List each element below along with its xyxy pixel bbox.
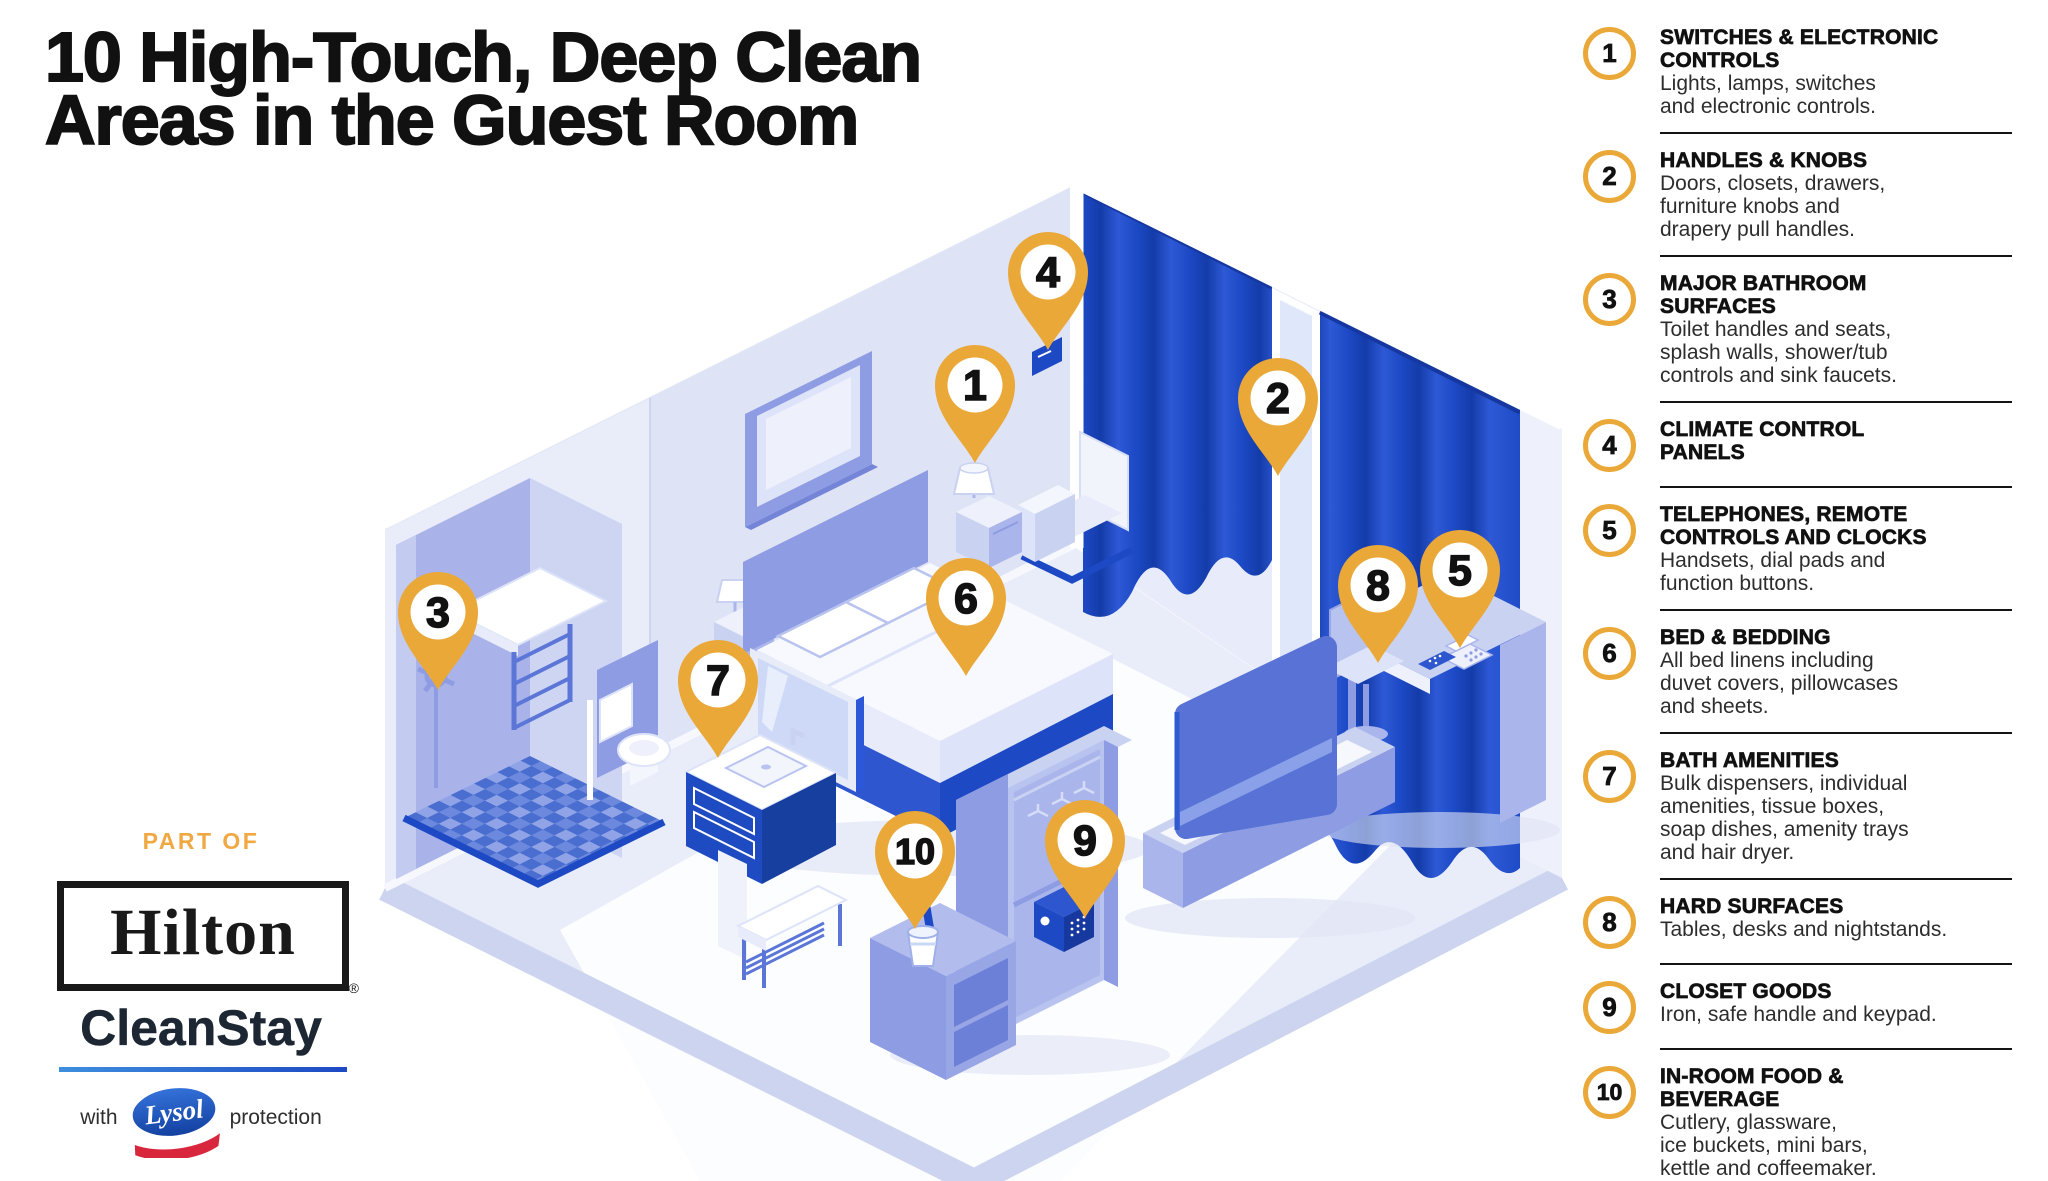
lysol-lockup: with Lysol protection — [43, 1078, 359, 1158]
legend-item-8: 8 HARD SURFACES Tables, desks and nights… — [1583, 893, 2025, 957]
legend-badge-8: 8 — [1583, 896, 1636, 949]
legend-title-2: HANDLES & KNOBS — [1660, 149, 2012, 172]
legend-badge-6: 6 — [1583, 627, 1636, 680]
legend-item-1: 1 SWITCHES & ELECTRONIC CONTROLS Lights,… — [1583, 24, 2025, 126]
legend-desc-5: Handsets, dial pads and function buttons… — [1660, 549, 2012, 595]
legend-desc-6: All bed linens including duvet covers, p… — [1660, 649, 2012, 718]
divider — [1660, 609, 2012, 611]
divider — [1660, 732, 2012, 734]
svg-text:10: 10 — [895, 831, 935, 872]
svg-text:8: 8 — [1366, 562, 1390, 610]
part-of-label: PART OF — [43, 828, 359, 855]
legend-item-9: 9 CLOSET GOODS Iron, safe handle and key… — [1583, 978, 2025, 1042]
lysol-logo: Lysol — [128, 1078, 220, 1158]
svg-text:7: 7 — [706, 657, 730, 705]
page-title: 10 High-Touch, Deep Clean Areas in the G… — [45, 26, 921, 152]
svg-text:3: 3 — [426, 589, 450, 637]
title-line-1: 10 High-Touch, Deep Clean — [45, 26, 921, 89]
legend-desc-3: Toilet handles and seats, splash walls, … — [1660, 318, 2012, 387]
divider — [1660, 486, 2012, 488]
legend: 1 SWITCHES & ELECTRONIC CONTROLS Lights,… — [1583, 24, 2025, 1181]
legend-title-1: SWITCHES & ELECTRONIC CONTROLS — [1660, 26, 2012, 72]
legend-title-8: HARD SURFACES — [1660, 895, 2012, 918]
legend-title-5: TELEPHONES, REMOTE CONTROLS AND CLOCKS — [1660, 503, 2012, 549]
divider — [1660, 1048, 2012, 1050]
svg-text:6: 6 — [954, 575, 978, 623]
legend-badge-10: 10 — [1583, 1066, 1636, 1119]
legend-title-4: CLIMATE CONTROL PANELS — [1660, 418, 2012, 464]
branding: PART OF Hilton ® CleanStay with Lysol — [43, 828, 363, 1158]
hilton-logo: Hilton ® — [57, 881, 349, 991]
protection-label: protection — [230, 1106, 322, 1130]
legend-title-9: CLOSET GOODS — [1660, 980, 2012, 1003]
legend-title-6: BED & BEDDING — [1660, 626, 2012, 649]
divider — [1660, 878, 2012, 880]
legend-badge-5: 5 — [1583, 504, 1636, 557]
legend-item-3: 3 MAJOR BATHROOM SURFACES Toilet handles… — [1583, 270, 2025, 395]
legend-title-7: BATH AMENITIES — [1660, 749, 2012, 772]
svg-text:9: 9 — [1073, 817, 1097, 865]
title-line-2: Areas in the Guest Room — [45, 89, 921, 152]
legend-title-3: MAJOR BATHROOM SURFACES — [1660, 272, 2012, 318]
svg-text:2: 2 — [1266, 375, 1290, 423]
divider — [1660, 963, 2012, 965]
legend-desc-1: Lights, lamps, switches and electronic c… — [1660, 72, 2012, 118]
legend-badge-7: 7 — [1583, 750, 1636, 803]
legend-badge-1: 1 — [1583, 27, 1636, 80]
svg-text:5: 5 — [1448, 547, 1472, 595]
legend-desc-7: Bulk dispensers, individual amenities, t… — [1660, 772, 2012, 864]
legend-desc-9: Iron, safe handle and keypad. — [1660, 1003, 2012, 1026]
legend-item-6: 6 BED & BEDDING All bed linens including… — [1583, 624, 2025, 726]
legend-desc-10: Cutlery, glassware, ice buckets, mini ba… — [1660, 1111, 2012, 1180]
legend-badge-4: 4 — [1583, 419, 1636, 472]
legend-desc-2: Doors, closets, drawers, furniture knobs… — [1660, 172, 2012, 241]
divider — [1660, 401, 2012, 403]
svg-text:1: 1 — [963, 362, 987, 410]
legend-item-7: 7 BATH AMENITIES Bulk dispensers, indivi… — [1583, 747, 2025, 872]
legend-item-5: 5 TELEPHONES, REMOTE CONTROLS AND CLOCKS… — [1583, 501, 2025, 603]
legend-item-10: 10 IN-ROOM FOOD & BEVERAGE Cutlery, glas… — [1583, 1063, 2025, 1181]
svg-text:4: 4 — [1036, 249, 1060, 297]
legend-title-10: IN-ROOM FOOD & BEVERAGE — [1660, 1065, 2012, 1111]
legend-badge-3: 3 — [1583, 273, 1636, 326]
legend-desc-8: Tables, desks and nightstands. — [1660, 918, 2012, 941]
cleanstay-wordmark: CleanStay — [43, 999, 359, 1057]
infographic: 10 High-Touch, Deep Clean Areas in the G… — [0, 0, 2048, 1181]
legend-item-4: 4 CLIMATE CONTROL PANELS — [1583, 416, 2025, 480]
legend-item-2: 2 HANDLES & KNOBS Doors, closets, drawer… — [1583, 147, 2025, 249]
window-glass — [1280, 300, 1312, 688]
brand-divider-line — [59, 1067, 347, 1072]
registered-mark: ® — [349, 980, 359, 996]
legend-badge-9: 9 — [1583, 981, 1636, 1034]
legend-badge-2: 2 — [1583, 150, 1636, 203]
divider — [1660, 132, 2012, 134]
with-label: with — [80, 1106, 117, 1130]
hilton-wordmark: Hilton — [110, 895, 296, 977]
divider — [1660, 255, 2012, 257]
